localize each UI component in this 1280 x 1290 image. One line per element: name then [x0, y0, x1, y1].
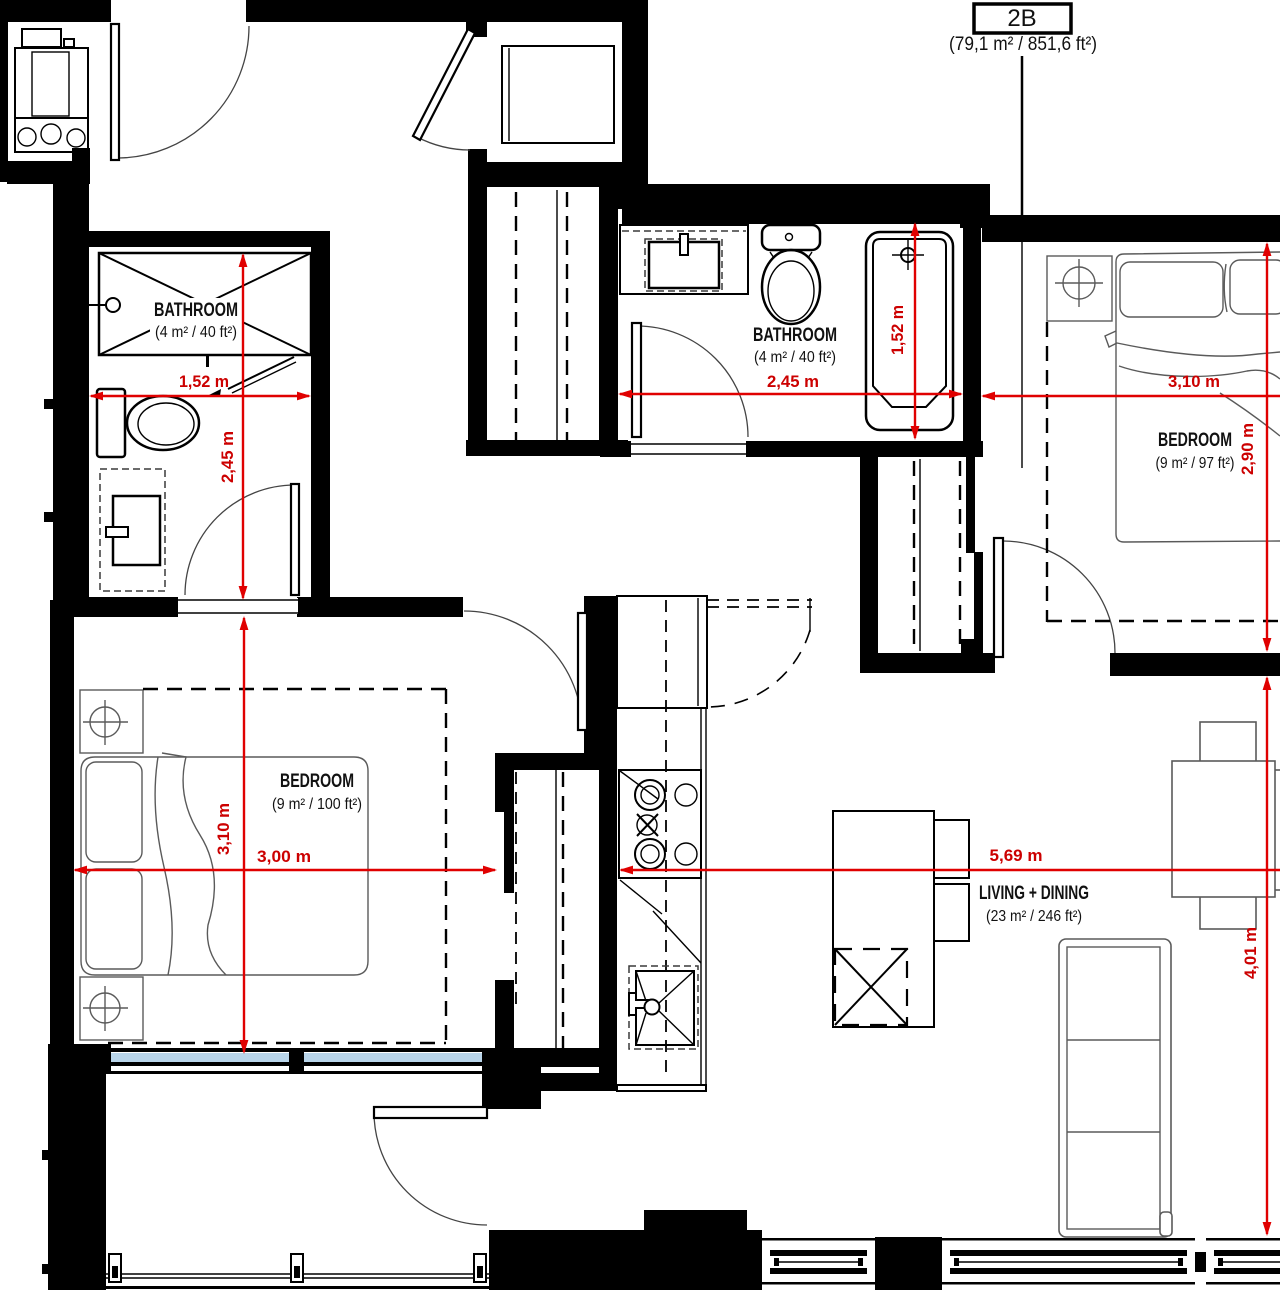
svg-text:2,45 m: 2,45 m: [219, 431, 237, 483]
svg-text:1,52 m: 1,52 m: [179, 373, 229, 391]
svg-text:2,90 m: 2,90 m: [1239, 423, 1257, 475]
svg-text:LIVING + DINING: LIVING + DINING: [979, 883, 1089, 904]
svg-text:3,10 m: 3,10 m: [1168, 373, 1220, 391]
svg-text:BATHROOM: BATHROOM: [154, 300, 238, 321]
svg-text:5,69 m: 5,69 m: [990, 847, 1043, 865]
svg-text:(79,1 m² / 851,6 ft²): (79,1 m² / 851,6 ft²): [949, 34, 1097, 55]
svg-text:1,52 m: 1,52 m: [889, 305, 907, 355]
svg-text:(9 m² / 100 ft²): (9 m² / 100 ft²): [272, 796, 362, 813]
svg-text:BATHROOM: BATHROOM: [753, 325, 837, 346]
svg-text:BEDROOM: BEDROOM: [1158, 430, 1232, 451]
svg-text:3,00 m: 3,00 m: [257, 848, 311, 866]
svg-text:(4 m² / 40 ft²): (4 m² / 40 ft²): [754, 349, 836, 366]
svg-text:(23 m² / 246 ft²): (23 m² / 246 ft²): [986, 908, 1082, 925]
svg-text:2B: 2B: [1007, 5, 1036, 32]
svg-text:2,45 m: 2,45 m: [767, 373, 819, 391]
svg-text:4,01 m: 4,01 m: [1242, 927, 1260, 979]
svg-text:3,10 m: 3,10 m: [215, 803, 233, 855]
svg-text:(4 m² / 40 ft²): (4 m² / 40 ft²): [155, 324, 237, 341]
svg-text:(9 m² / 97 ft²): (9 m² / 97 ft²): [1156, 455, 1235, 472]
svg-text:BEDROOM: BEDROOM: [280, 771, 354, 792]
